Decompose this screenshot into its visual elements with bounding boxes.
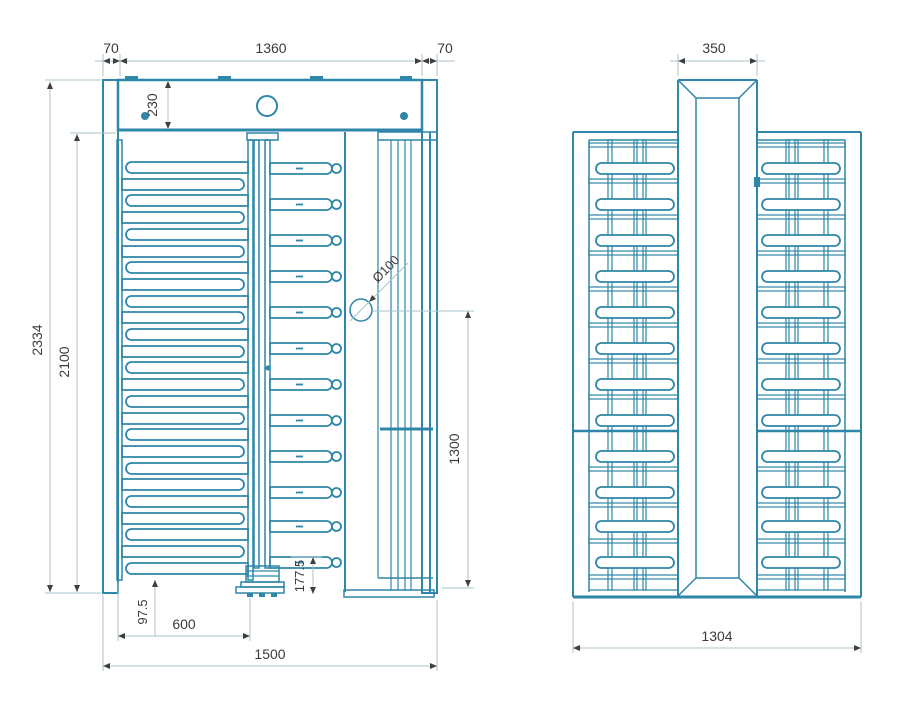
header-mount-tab [310, 76, 323, 80]
dim-right-post-width: 70 [437, 40, 453, 56]
left-cage [573, 132, 678, 597]
header-mount-tab [400, 76, 412, 80]
dim-column-width: 350 [702, 40, 726, 56]
rotor-pivot-dot [266, 366, 271, 371]
rotor-arms [270, 163, 341, 568]
dim-side-panel-height: 1300 [446, 433, 462, 464]
header-lock-circle [257, 96, 277, 116]
header-mount-tab [125, 76, 138, 80]
panel-base-plate [344, 590, 434, 597]
rotor-top-cap [247, 133, 278, 140]
dim-comb-width: 600 [172, 616, 196, 632]
drawing-canvas: 70 1360 70 230 2334 2100 Ø100 1300 177.5 [0, 0, 913, 709]
rotor-assembly [236, 133, 341, 597]
header-mount-tab [218, 76, 231, 80]
dim-frame-width: 1360 [255, 40, 286, 56]
rotor-column-left-wall [254, 140, 259, 568]
dim-arm-clearance: 177.5 [292, 560, 307, 593]
comb-panel [117, 140, 253, 580]
center-column [678, 80, 760, 596]
dim-inner-height: 2100 [56, 346, 72, 377]
header-box [118, 76, 422, 130]
dim-overall-depth: 1304 [701, 628, 732, 644]
right-cage [757, 132, 861, 597]
front-view [103, 76, 437, 597]
front-left-post [103, 80, 118, 593]
dim-overall-height: 2334 [29, 324, 45, 355]
dim-left-post-width: 70 [103, 40, 119, 56]
comb-bars [122, 162, 248, 574]
side-barrier-panel [344, 132, 437, 597]
panel-top-cap [378, 132, 437, 140]
dim-header-height: 230 [144, 93, 160, 117]
side-view [573, 80, 861, 597]
turnstile-technical-drawing: 70 1360 70 230 2334 2100 Ø100 1300 177.5 [0, 0, 913, 709]
dim-overall-width: 1500 [254, 646, 285, 662]
header-bolt-right [400, 112, 408, 120]
dim-comb-clearance: 97.5 [135, 599, 150, 624]
